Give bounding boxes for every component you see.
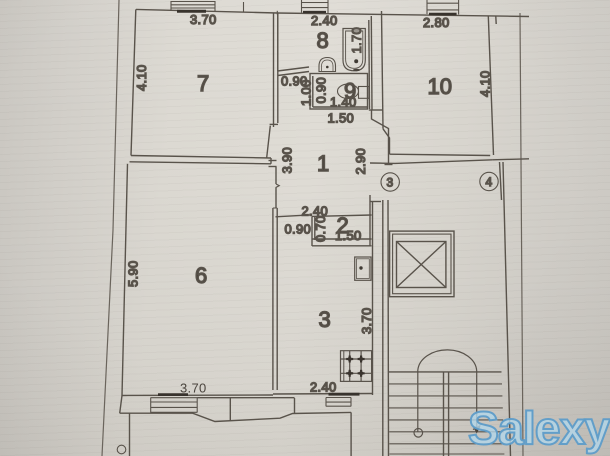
svg-text:2.80: 2.80 [423,15,450,30]
svg-text:1: 1 [317,151,329,176]
svg-text:1.50: 1.50 [335,228,362,243]
svg-text:3: 3 [319,307,331,332]
svg-text:10: 10 [428,74,452,99]
svg-text:0.70: 0.70 [313,215,328,242]
svg-text:3.70: 3.70 [359,307,374,334]
svg-text:6: 6 [195,263,207,288]
svg-text:8: 8 [317,28,329,53]
svg-text:1.00: 1.00 [299,79,314,106]
svg-text:7: 7 [197,71,209,96]
svg-text:5.90: 5.90 [126,260,141,287]
svg-text:Salexy: Salexy [468,402,610,454]
svg-text:1.40: 1.40 [330,95,357,110]
svg-text:3.70: 3.70 [190,12,217,27]
svg-text:3: 3 [387,176,394,190]
svg-text:1.50: 1.50 [328,111,355,126]
svg-text:3.70: 3.70 [180,381,207,396]
svg-text:1.70: 1.70 [349,27,364,54]
svg-text:4: 4 [486,175,493,189]
svg-text:2.40: 2.40 [311,13,338,28]
svg-text:3.90: 3.90 [280,147,295,174]
svg-text:0.90: 0.90 [285,222,312,237]
svg-text:4.10: 4.10 [134,64,149,91]
svg-text:4.10: 4.10 [478,70,493,97]
svg-text:2.90: 2.90 [353,148,368,175]
svg-text:2.40: 2.40 [310,380,337,395]
svg-text:0.90: 0.90 [314,77,329,104]
